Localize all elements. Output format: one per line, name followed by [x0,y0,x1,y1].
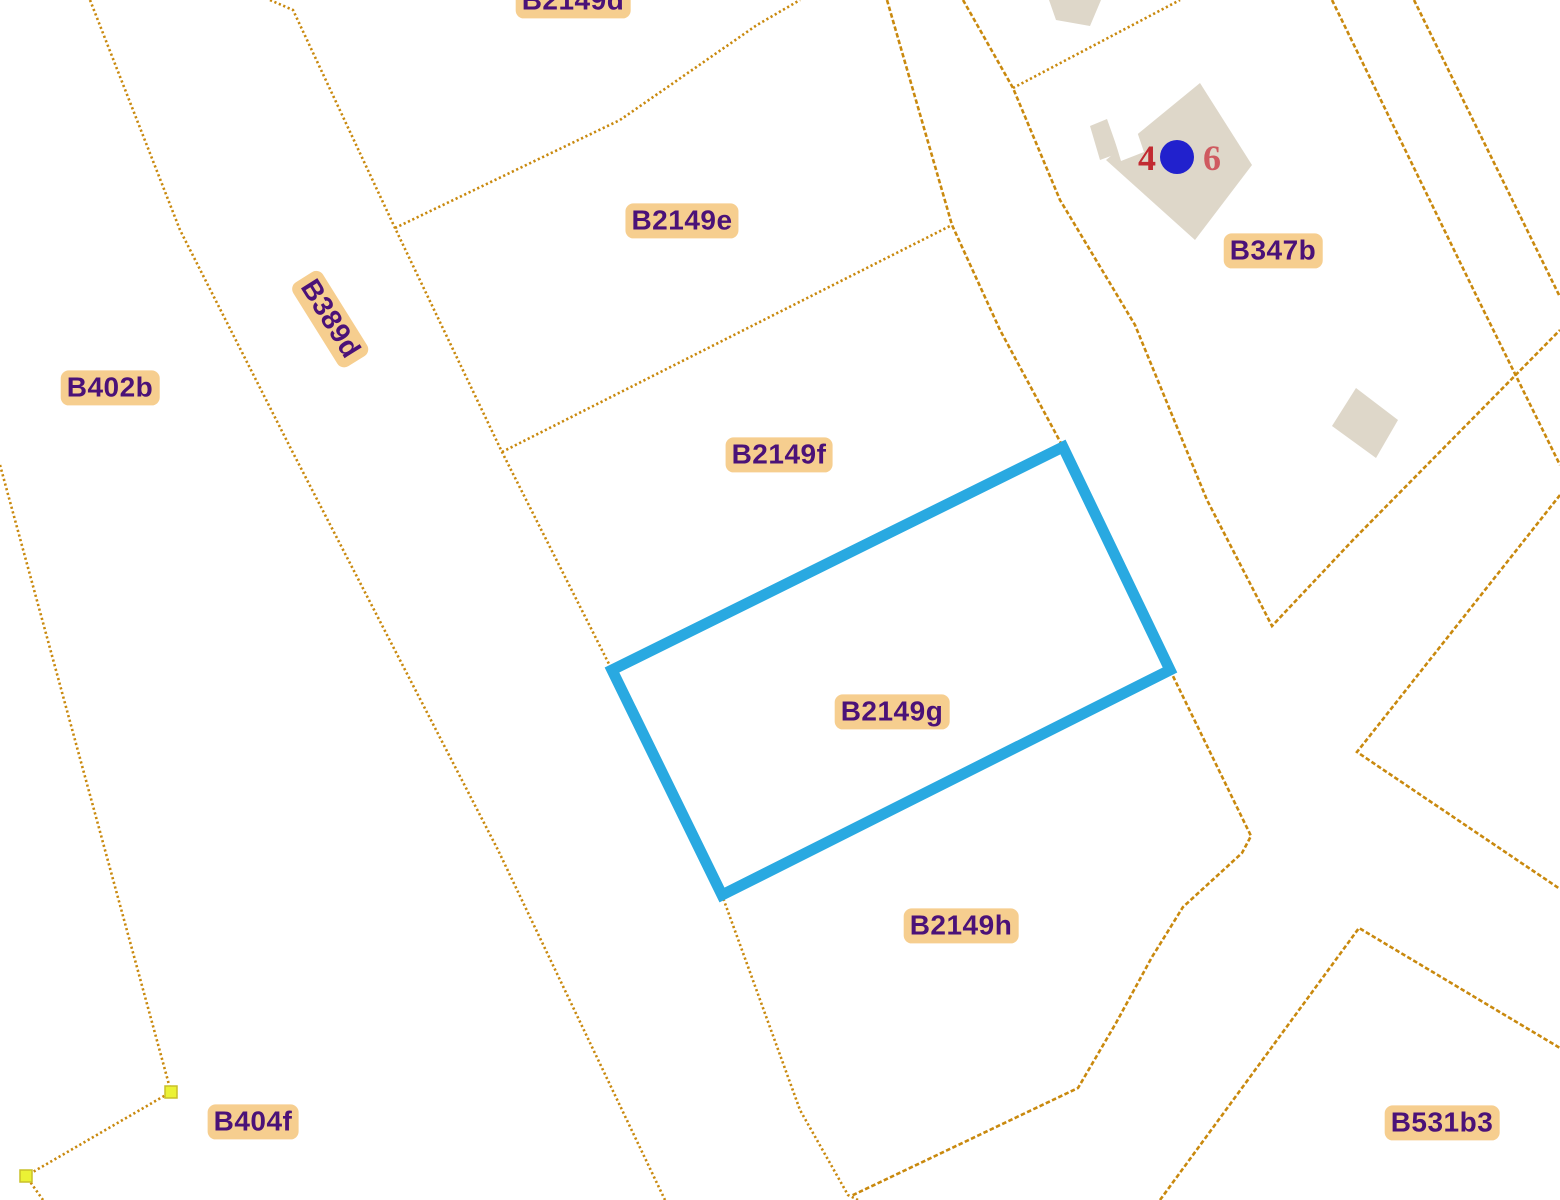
parcel-label-B402b[interactable]: B402b [61,370,160,405]
parcel-label-B347b[interactable]: B347b [1224,233,1323,268]
survey-vertex-marker [165,1086,177,1098]
parcel-label-B404f[interactable]: B404f [208,1104,299,1139]
parcel-label-B2149f[interactable]: B2149f [726,437,833,472]
road-B389d-west-edge [90,0,665,1200]
survey-vertex-marker [20,1170,32,1182]
top-right-corner-boundary [1414,0,1560,297]
boundary-B2149e-B2149f [502,225,952,452]
parcel-B531b3-north-boundary [1160,928,1560,1200]
parcel-label-B2149h[interactable]: B2149h [904,908,1019,943]
block-northeast-boundary [887,0,1063,447]
building-B347b-south [1332,388,1398,458]
road-B389d-east-edge-block-west [270,0,858,1200]
selected-parcel-outline-B2149g[interactable] [612,447,1170,895]
building-top-edge [1049,0,1101,26]
parcel-label-B2149g[interactable]: B2149g [835,694,950,729]
address-number-right: 6 [1203,138,1221,178]
parcel-boundary-B402b-west [0,465,171,1200]
road-east-edge-B347b-west [963,0,1560,626]
parcel-label-B531b3[interactable]: B531b3 [1385,1105,1500,1140]
parcel-label-B2149d[interactable]: B2149d [516,0,631,19]
parcel-label-B2149e[interactable]: B2149e [625,203,738,238]
cadastral-map: 46 B2149dB2149eB2149fB2149gB2149hB347bB4… [0,0,1560,1200]
road-fork-east-wedge [1357,495,1560,889]
address-number-left: 4 [1138,138,1156,178]
address-point-marker[interactable] [1160,140,1194,174]
boundary-B2149d-B2149e [395,0,800,228]
map-geometry-layer: 46 [0,0,1560,1200]
boundary-B347b-northwest [1013,0,1180,88]
boundary-B347b-east [1332,0,1560,465]
